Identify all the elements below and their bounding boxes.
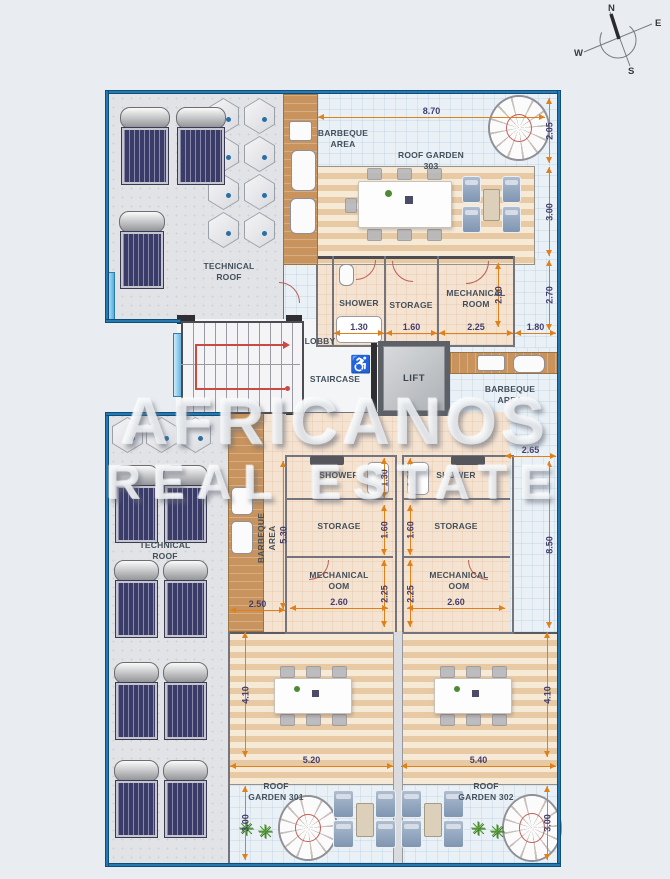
dim-left-width: 2.50 (230, 610, 285, 611)
dining-set (268, 666, 356, 724)
rooms-top-wall (316, 256, 515, 259)
outer-wall-right (557, 90, 561, 867)
dim-deck-left: 4.10 (245, 632, 246, 757)
lounger-group (401, 790, 463, 848)
outer-wall-bottom (105, 863, 561, 867)
solar-panel-unit (163, 560, 208, 637)
lift-box: LIFT (378, 341, 450, 416)
label-mechanical-301: MECHANICAL OOM (299, 570, 379, 592)
dim-right-upper: 3.00 (549, 167, 550, 256)
dim-top-width: 8.70 (318, 117, 545, 118)
dim-right-top: 2.05 (549, 98, 550, 163)
compass-n: N (608, 3, 615, 14)
toilet (339, 264, 354, 286)
label-barbeque-left: BARBEQUE AREA (235, 506, 299, 570)
label-mechanical-302: MECHANICAL OOM (419, 570, 499, 592)
compass-w: W (574, 48, 583, 59)
lounger-group (333, 790, 395, 848)
label-barbeque-right: BARBEQUE AREA (479, 384, 541, 406)
outer-wall-left-lower (105, 412, 109, 867)
plant-icon: ✳ (470, 820, 486, 839)
dim-unit2-storage: 1.60 (410, 505, 411, 555)
label-storage: STORAGE (383, 300, 439, 311)
grill-appliance (289, 121, 312, 141)
dim-unit1-mech: 2.25 (384, 560, 385, 627)
staircase-box (181, 321, 304, 414)
compass-rose: N E W S (572, 2, 664, 78)
shower-fixture (451, 456, 485, 465)
dim-row-shower: 1.30 (334, 333, 384, 334)
solar-panel-unit (114, 560, 159, 637)
label-storage-302: STORAGE (431, 521, 481, 532)
notch-wall (105, 319, 181, 323)
label-shower: SHOWER (334, 298, 384, 309)
dim-bottom-left: 3.00 (245, 786, 246, 860)
floor-plan: ✳ ✳ ✳ ✳ LIFT ♿ (0, 0, 670, 879)
dim-garden301-width: 5.20 (230, 766, 393, 767)
dim-unit1-shower: 1.30 (384, 458, 385, 498)
label-roof-garden-302: ROOF GARDEN 302 (457, 781, 515, 803)
label-roof-garden-303: ROOF GARDEN 303 (394, 150, 468, 172)
plant-icon: ✳ (257, 823, 273, 842)
dim-row-end: 1.80 (515, 333, 556, 334)
dim-unit1-width: 2.60 (290, 608, 388, 609)
dim-gap-right: 2.65 (505, 456, 556, 457)
dim-right-mid: 2.70 (549, 260, 550, 330)
dim-bottom-right: 3.00 (547, 786, 548, 860)
fridge-appliance (291, 150, 316, 191)
spiral-staircase (280, 797, 336, 859)
dining-set (345, 168, 461, 240)
label-roof-garden-301: ROOF GARDEN 301 (247, 781, 305, 803)
counter-appliance (290, 198, 316, 234)
dim-garden302-width: 5.40 (401, 766, 556, 767)
outer-wall-left-upper (105, 90, 109, 323)
label-technical-roof-bottom: TECHNICAL ROOF (128, 540, 202, 562)
lift-label: LIFT (403, 373, 425, 384)
label-shower-302: SHOWER (431, 470, 481, 481)
solar-panel-unit (114, 465, 159, 542)
label-storage-301: STORAGE (314, 521, 364, 532)
dim-row-mech: 2.25 (439, 333, 513, 334)
compass-e: E (655, 18, 661, 29)
label-mechanical-room: MECHANICAL ROOM (437, 288, 515, 310)
solar-panel-unit (163, 662, 208, 739)
wheelchair-icon: ♿ (350, 355, 371, 375)
solar-panel-unit (176, 107, 226, 184)
label-technical-roof-top: TECHNICAL ROOF (192, 261, 266, 283)
solar-panel-unit (120, 107, 170, 184)
solar-panel-unit (119, 211, 165, 288)
dim-unit2-width: 2.60 (407, 608, 505, 609)
dim-unit1-storage: 1.60 (384, 505, 385, 555)
grill-right (513, 355, 545, 373)
solar-panel-unit (163, 760, 208, 837)
dining-set (428, 666, 516, 724)
plant-icon: ✳ (489, 823, 505, 842)
dim-right-lower: 8.50 (549, 461, 550, 628)
compass-s: S (628, 66, 634, 77)
shower-fixture (310, 456, 344, 465)
dining-table (358, 181, 452, 228)
label-barbeque-top: BARBEQUE AREA (312, 128, 374, 150)
dim-unit2-mech: 2.25 (410, 560, 411, 627)
spiral-staircase (490, 97, 548, 159)
solar-panel-unit (114, 760, 159, 837)
outer-wall-top (105, 90, 561, 94)
solar-panel-unit (114, 662, 159, 739)
dim-deck-right: 4.10 (547, 632, 548, 757)
solar-panel-unit (163, 465, 208, 542)
lounger-group (462, 176, 520, 233)
dim-unit2-shower: 1.30 (410, 458, 411, 498)
sink-right (477, 355, 505, 371)
lower-top-wall (105, 412, 230, 416)
label-shower-301: SHOWER (314, 470, 364, 481)
label-lobby: LOBBY (298, 336, 342, 347)
dim-row-storage: 1.60 (386, 333, 437, 334)
label-staircase: STAIRCASE (304, 374, 366, 385)
